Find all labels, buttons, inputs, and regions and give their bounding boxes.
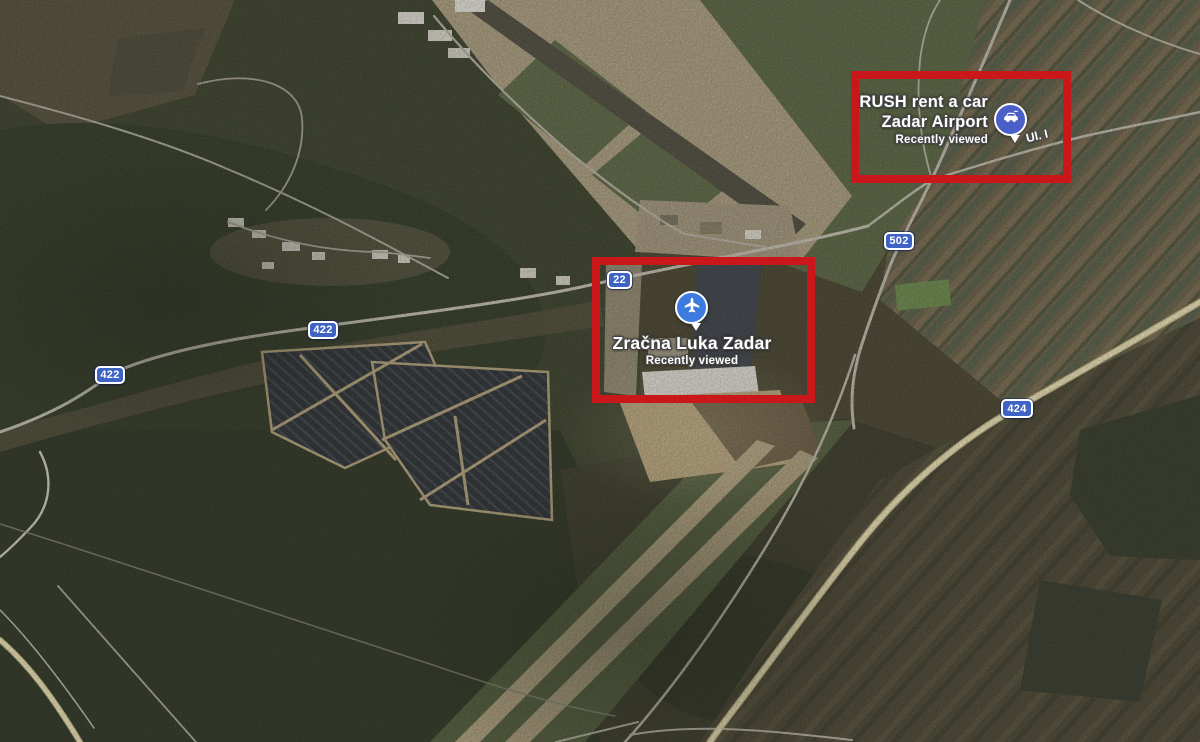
highlight-box-rush-rent-a-car: [851, 71, 1071, 183]
road-shield-422-west: 422: [95, 366, 125, 384]
road-shield-422-east: 422: [308, 321, 338, 339]
highlight-box-zracna-luka-zadar: [592, 257, 815, 403]
map-viewport[interactable]: 422 422 502 424 22 Ul. I: [0, 0, 1200, 742]
road-shield-424: 424: [1001, 399, 1033, 418]
road-shield-502: 502: [884, 232, 914, 250]
